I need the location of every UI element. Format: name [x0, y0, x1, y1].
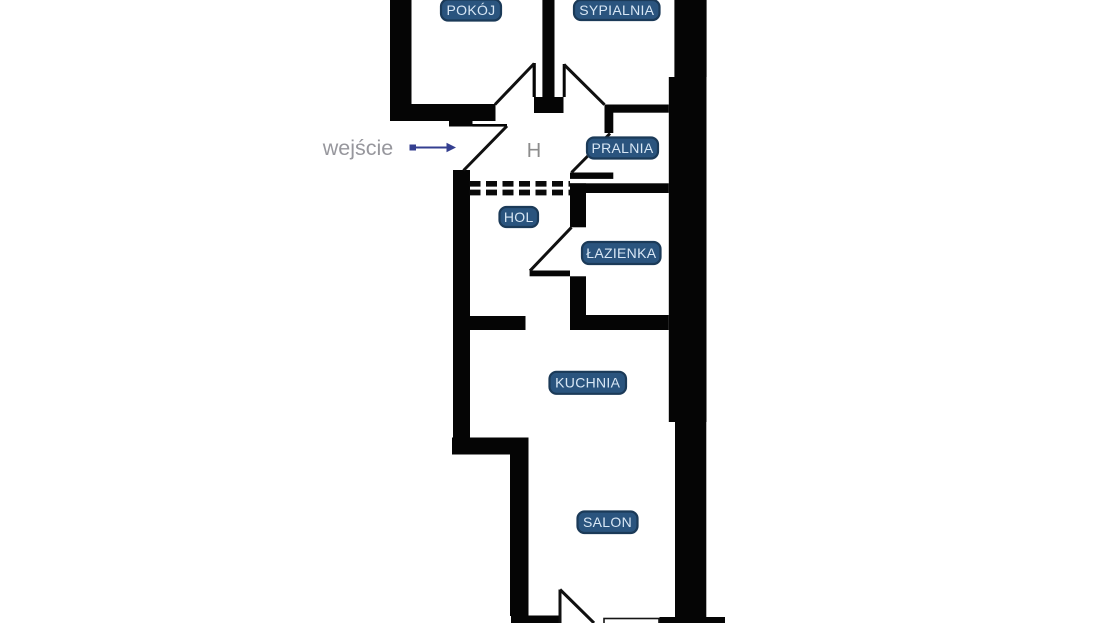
- svg-text:SALON: SALON: [583, 514, 632, 530]
- svg-text:KUCHNIA: KUCHNIA: [555, 375, 620, 391]
- svg-text:ŁAZIENKA: ŁAZIENKA: [586, 245, 656, 261]
- svg-text:PRALNIA: PRALNIA: [591, 140, 653, 156]
- svg-text:SYPIALNIA: SYPIALNIA: [579, 2, 654, 18]
- svg-text:POKÓJ: POKÓJ: [447, 2, 496, 18]
- svg-text:wejście: wejście: [322, 136, 394, 160]
- svg-text:HOL: HOL: [504, 209, 534, 225]
- svg-text:H: H: [527, 140, 541, 162]
